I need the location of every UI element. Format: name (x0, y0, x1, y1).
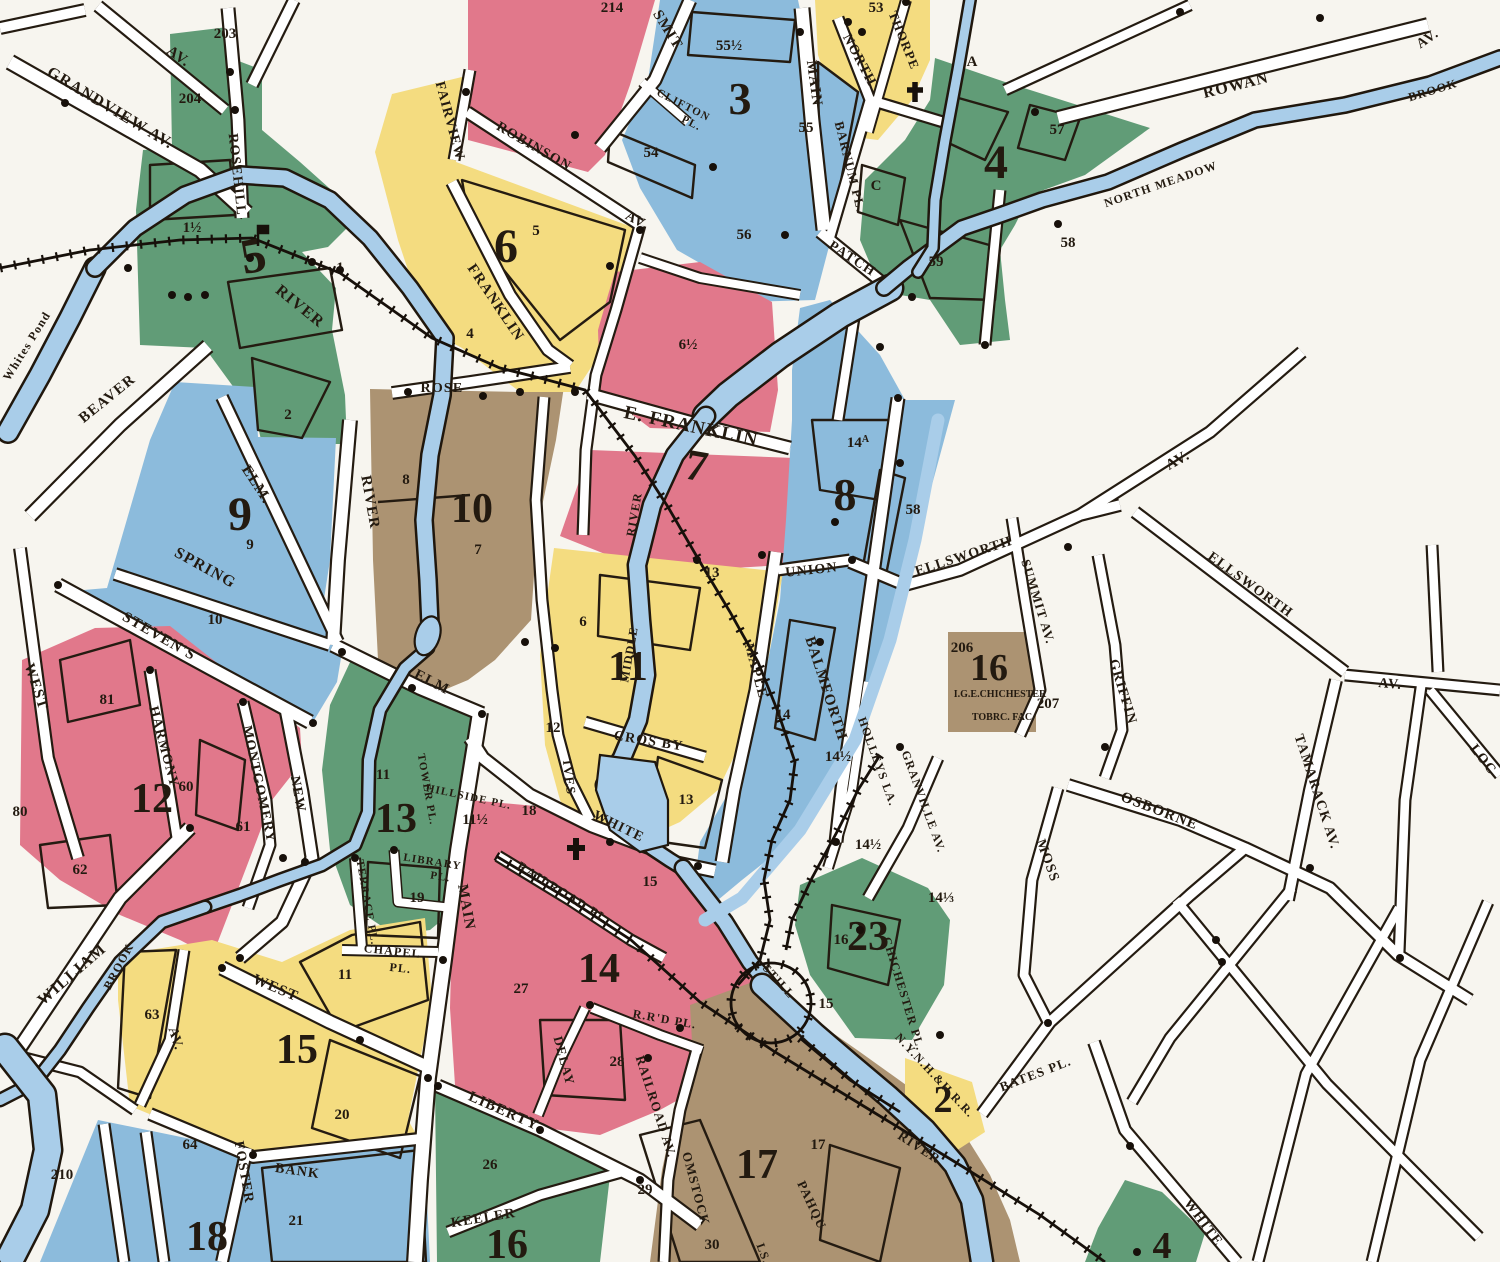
svg-text:27: 27 (514, 981, 530, 997)
svg-text:17: 17 (811, 1137, 827, 1153)
svg-text:59: 59 (929, 254, 944, 270)
svg-text:13: 13 (705, 565, 720, 581)
svg-text:60: 60 (179, 779, 194, 795)
svg-text:11: 11 (608, 644, 648, 690)
svg-text:21: 21 (289, 1213, 304, 1229)
svg-text:56: 56 (737, 227, 753, 243)
svg-text:12: 12 (131, 776, 173, 822)
svg-text:15: 15 (276, 1027, 318, 1073)
svg-text:18: 18 (186, 1214, 228, 1260)
svg-text:A: A (967, 54, 978, 70)
svg-text:18: 18 (522, 803, 537, 819)
svg-text:4: 4 (466, 326, 474, 342)
svg-text:9: 9 (246, 537, 254, 553)
svg-text:1½: 1½ (183, 220, 202, 236)
svg-text:14: 14 (578, 946, 620, 992)
svg-text:55½: 55½ (716, 38, 742, 54)
svg-text:204: 204 (179, 91, 202, 107)
svg-text:14: 14 (776, 707, 792, 723)
svg-text:63: 63 (145, 1007, 160, 1023)
svg-text:57: 57 (1050, 122, 1066, 138)
svg-text:AV.: AV. (1378, 676, 1403, 693)
svg-text:9: 9 (228, 488, 252, 541)
svg-text:12: 12 (546, 720, 561, 736)
svg-text:203: 203 (214, 26, 237, 42)
svg-text:10: 10 (451, 486, 493, 532)
svg-text:6: 6 (579, 614, 587, 630)
svg-text:62: 62 (73, 862, 88, 878)
svg-text:5: 5 (532, 223, 540, 239)
svg-text:55: 55 (799, 120, 814, 136)
svg-text:58: 58 (906, 502, 921, 518)
svg-text:16: 16 (834, 932, 850, 948)
svg-text:17: 17 (736, 1142, 778, 1188)
svg-text:29: 29 (638, 1182, 653, 1198)
svg-text:19: 19 (410, 890, 425, 906)
svg-text:2: 2 (934, 1079, 953, 1121)
svg-text:4: 4 (1153, 1225, 1172, 1262)
svg-text:3: 3 (729, 73, 752, 124)
svg-text:28: 28 (610, 1054, 625, 1070)
svg-text:54: 54 (644, 145, 660, 161)
svg-text:14½: 14½ (825, 749, 851, 765)
svg-text:23: 23 (847, 914, 889, 960)
svg-text:10: 10 (208, 612, 223, 628)
svg-text:206: 206 (951, 640, 974, 656)
svg-text:81: 81 (100, 692, 115, 708)
svg-text:11: 11 (338, 967, 352, 983)
svg-text:15: 15 (819, 996, 834, 1012)
svg-text:58: 58 (1061, 235, 1076, 251)
svg-text:214: 214 (601, 0, 624, 16)
svg-text:2: 2 (284, 407, 292, 423)
svg-text:11½: 11½ (462, 812, 487, 828)
svg-text:64: 64 (183, 1137, 199, 1153)
svg-text:16: 16 (486, 1222, 528, 1262)
svg-text:14½: 14½ (855, 837, 881, 853)
svg-text:13: 13 (679, 792, 694, 808)
svg-text:TOBRC. FAC: TOBRC. FAC (972, 712, 1032, 723)
svg-text:6: 6 (494, 220, 518, 273)
svg-text:C: C (871, 178, 882, 194)
svg-text:8: 8 (834, 469, 857, 520)
svg-text:53: 53 (869, 0, 884, 16)
svg-text:I.G.E.CHICHESTER: I.G.E.CHICHESTER (954, 689, 1047, 700)
svg-text:20: 20 (335, 1107, 350, 1123)
svg-text:26: 26 (483, 1157, 499, 1173)
svg-text:13: 13 (375, 796, 417, 842)
svg-text:30: 30 (705, 1237, 720, 1253)
svg-text:15: 15 (643, 874, 658, 890)
svg-text:61: 61 (236, 819, 251, 835)
svg-text:8: 8 (402, 472, 410, 488)
svg-text:210: 210 (51, 1167, 74, 1183)
svg-text:80: 80 (13, 804, 28, 820)
svg-text:ROSE: ROSE (421, 381, 464, 396)
svg-text:PL.: PL. (389, 960, 412, 976)
svg-text:4: 4 (984, 136, 1008, 189)
svg-text:16: 16 (970, 647, 1008, 689)
svg-text:11: 11 (376, 767, 390, 783)
svg-text:14⅓: 14⅓ (928, 890, 954, 906)
svg-text:6½: 6½ (679, 337, 698, 353)
svg-text:7: 7 (474, 542, 482, 558)
